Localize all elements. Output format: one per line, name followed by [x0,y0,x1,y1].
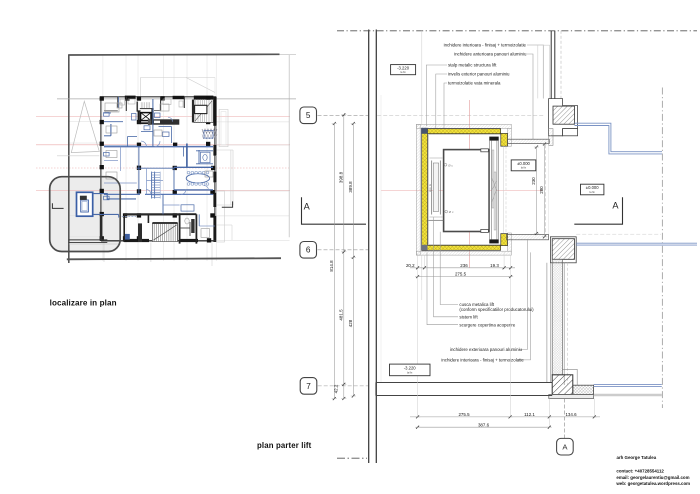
svg-text:la fin: la fin [590,191,596,194]
svg-text:scurgere copertina acoperire: scurgere copertina acoperire [459,322,515,327]
svg-text:-3.220: -3.220 [397,66,410,71]
svg-text:plan parter lift: plan parter lift [257,441,312,450]
svg-text:±0.000: ±0.000 [586,185,599,190]
svg-text:inchidere exterioara panouri a: inchidere exterioara panouri aluminiu [450,347,523,352]
svg-text:la fin: la fin [407,372,413,375]
svg-text:termoizolatie vata minerala: termoizolatie vata minerala [448,81,501,86]
svg-text:481.5: 481.5 [338,309,343,321]
svg-text:20.2: 20.2 [406,263,415,268]
svg-text:la fin: la fin [400,71,406,74]
svg-text:112.1: 112.1 [524,412,535,417]
svg-text:web: georgetatulea.wordpress.: web: georgetatulea.wordpress.com [615,481,690,486]
svg-text:428: 428 [348,319,353,327]
svg-text:275.5: 275.5 [458,412,470,417]
svg-text:±0.000: ±0.000 [517,161,530,166]
svg-text:398.8: 398.8 [338,171,343,183]
svg-text:invelis exterior panouri alumi: invelis exterior panouri aluminiu [448,72,510,77]
svg-text:389.8: 389.8 [348,181,353,193]
svg-text:6: 6 [306,246,311,255]
svg-text:-3.220: -3.220 [404,366,417,371]
svg-text:stalp metalic structura lift: stalp metalic structura lift [448,63,497,68]
svg-text:A: A [304,201,311,211]
svg-text:localizare in plan: localizare in plan [50,299,117,308]
svg-text:280: 280 [539,186,544,194]
svg-text:sist. E: sist. E [428,184,432,192]
svg-text:contact: +40728554112: contact: +40728554112 [616,469,664,474]
svg-text:387.6: 387.6 [478,422,490,427]
svg-text:814.8: 814.8 [329,260,334,272]
svg-text:A: A [612,201,619,211]
svg-text:inchidere interioara - finisaj: inchidere interioara - finisaj + termoiz… [444,43,527,48]
svg-text:236: 236 [460,263,468,268]
svg-text:sistem lift: sistem lift [459,315,478,320]
svg-text:19.3: 19.3 [490,263,499,268]
svg-text:134.6: 134.6 [565,412,577,417]
svg-text:Ø c: Ø c [448,163,453,167]
svg-text:arh George Tatulea: arh George Tatulea [617,455,657,460]
svg-text:275.5: 275.5 [455,272,467,277]
svg-text:inchidere anterioara panouri a: inchidere anterioara panouri aluminiu [454,52,527,57]
svg-text:7: 7 [306,382,311,391]
svg-text:A: A [562,443,568,452]
svg-text:42.2: 42.2 [333,384,338,393]
svg-text:5: 5 [306,111,311,120]
svg-text:230: 230 [531,177,536,185]
svg-text:(conform specificatiilor produ: (conform specificatiilor producatorului) [459,307,534,312]
svg-text:inchidere interioara - finisaj: inchidere interioara - finisaj + termoiz… [441,358,524,363]
svg-text:Ø c: Ø c [449,210,454,214]
svg-text:la fin: la fin [521,167,527,170]
svg-text:email: georgelaurentiu@gmail.: email: georgelaurentiu@gmail.com [616,475,689,480]
